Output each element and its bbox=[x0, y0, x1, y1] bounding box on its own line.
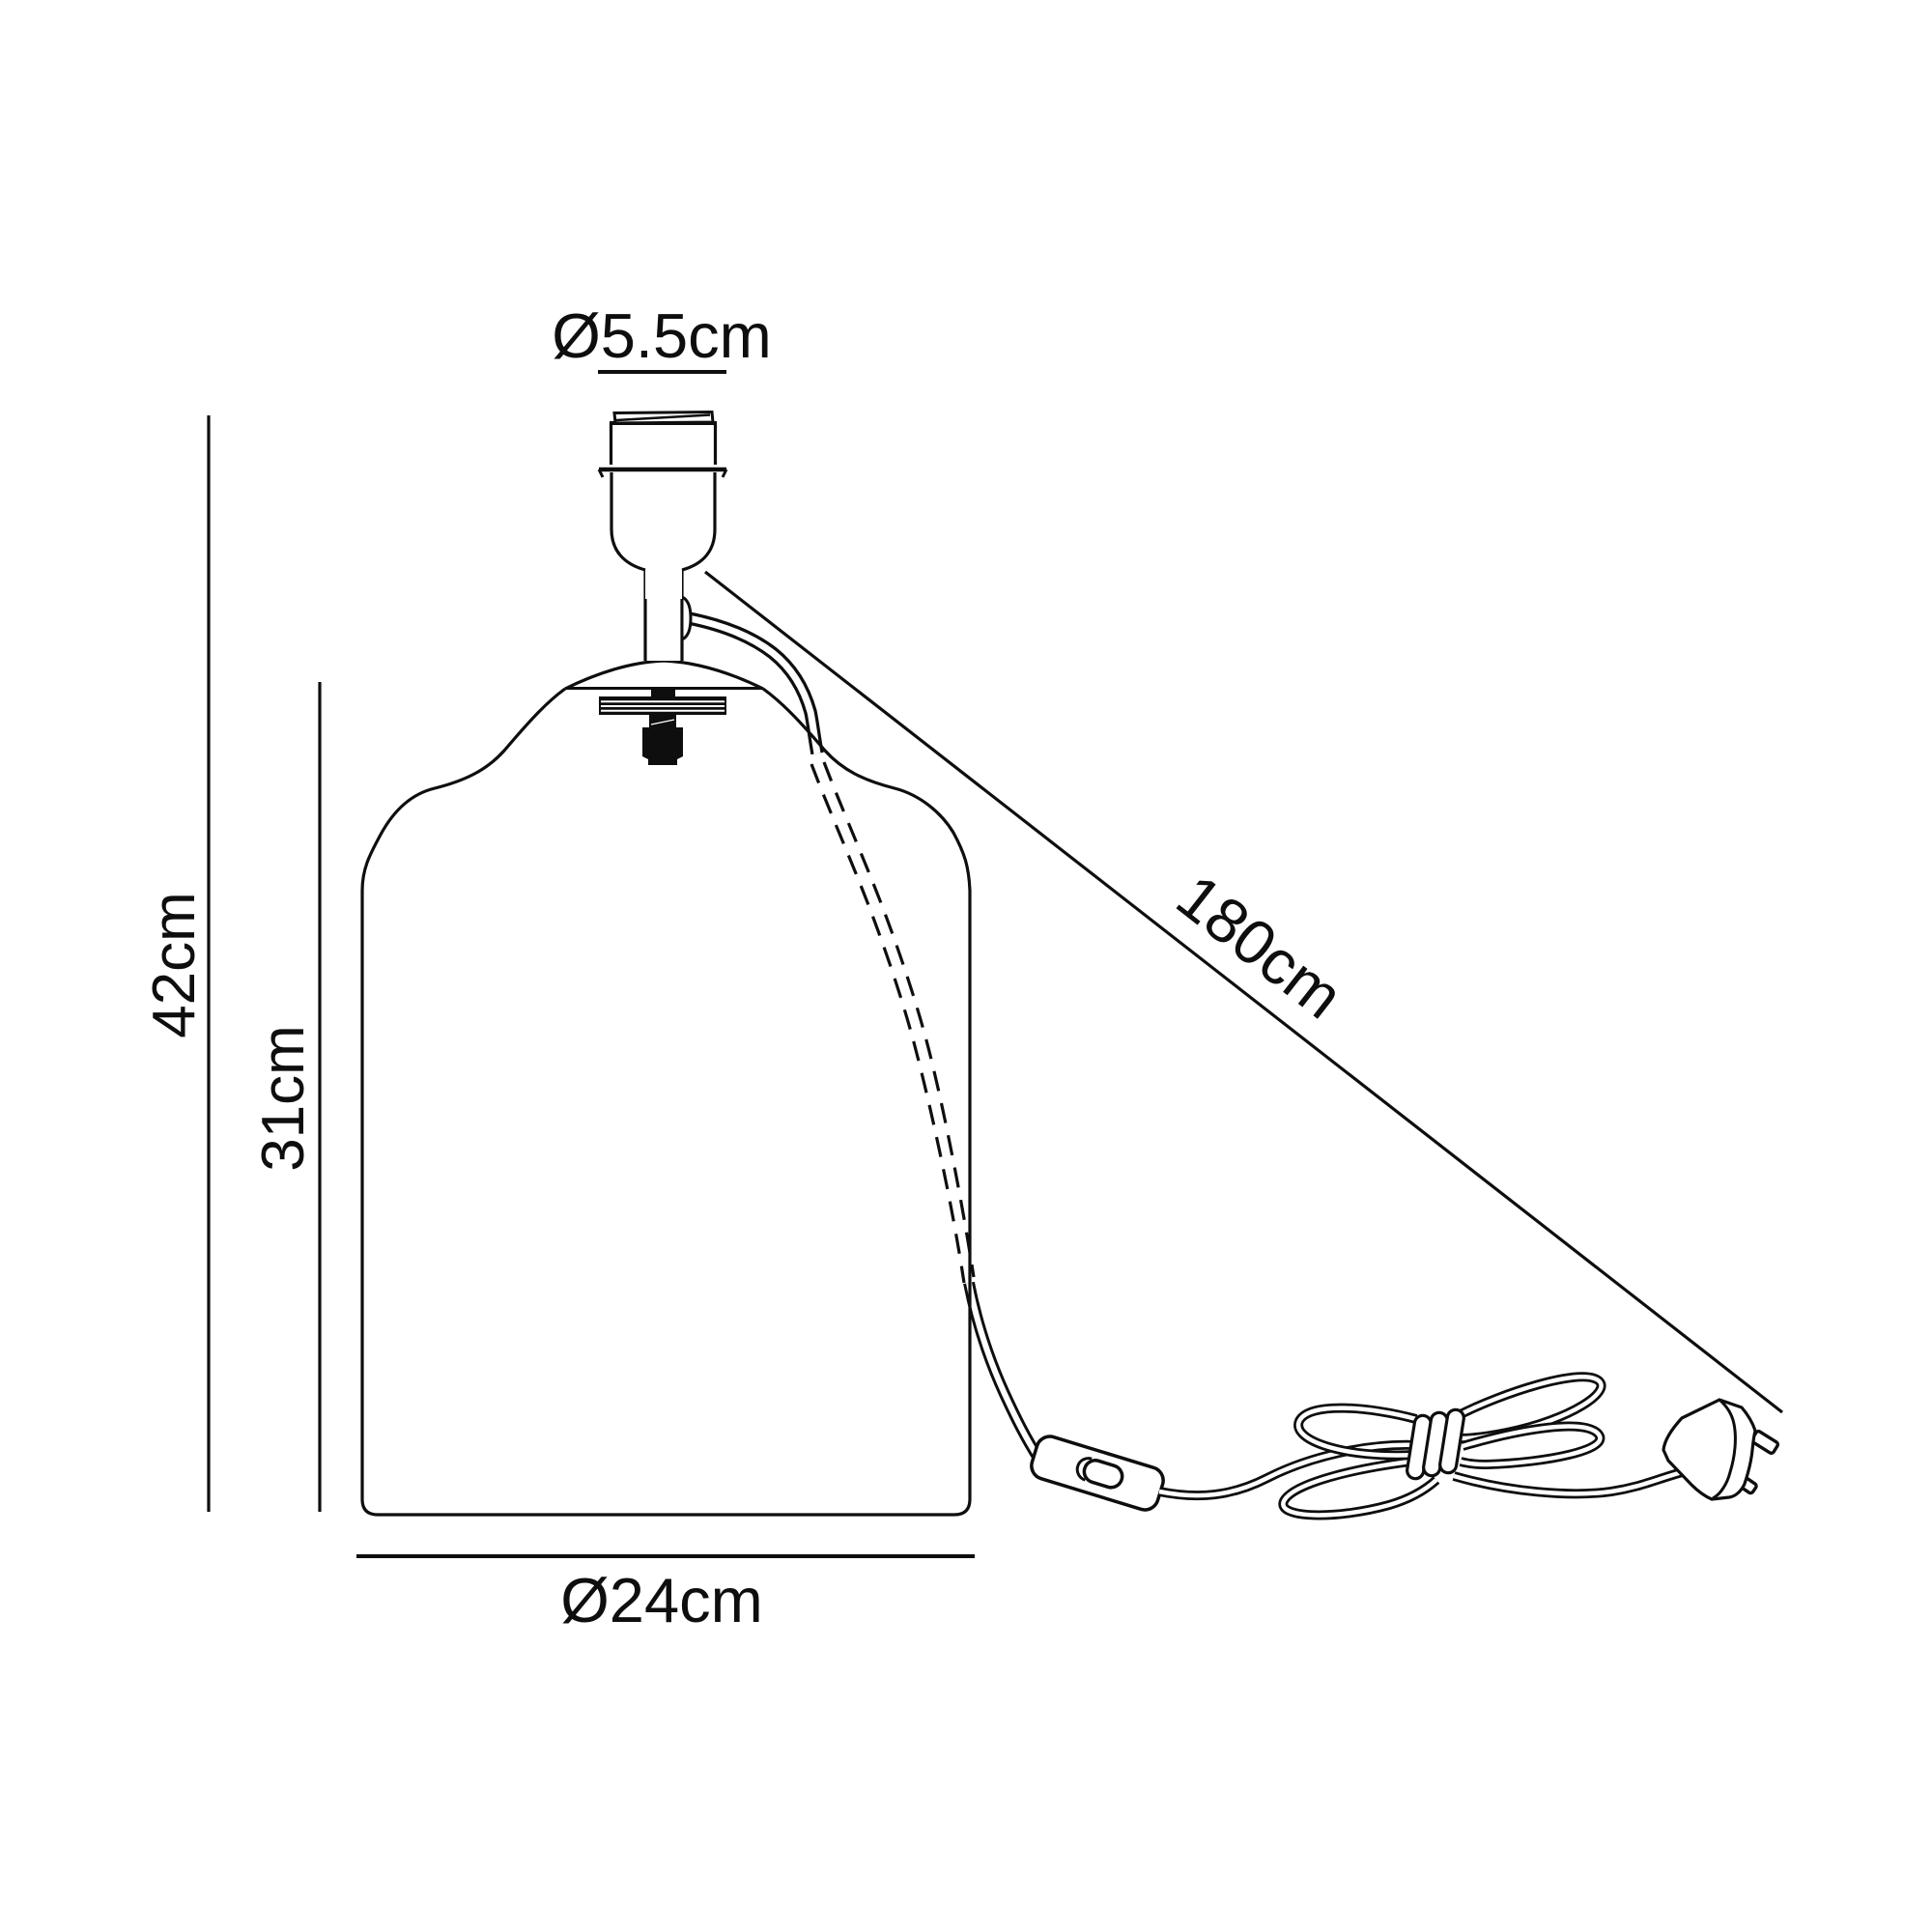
svg-text:Ø24cm: Ø24cm bbox=[560, 1565, 763, 1635]
svg-text:Ø5.5cm: Ø5.5cm bbox=[552, 300, 772, 371]
svg-text:42cm: 42cm bbox=[141, 892, 208, 1038]
svg-text:31cm: 31cm bbox=[250, 1025, 317, 1172]
